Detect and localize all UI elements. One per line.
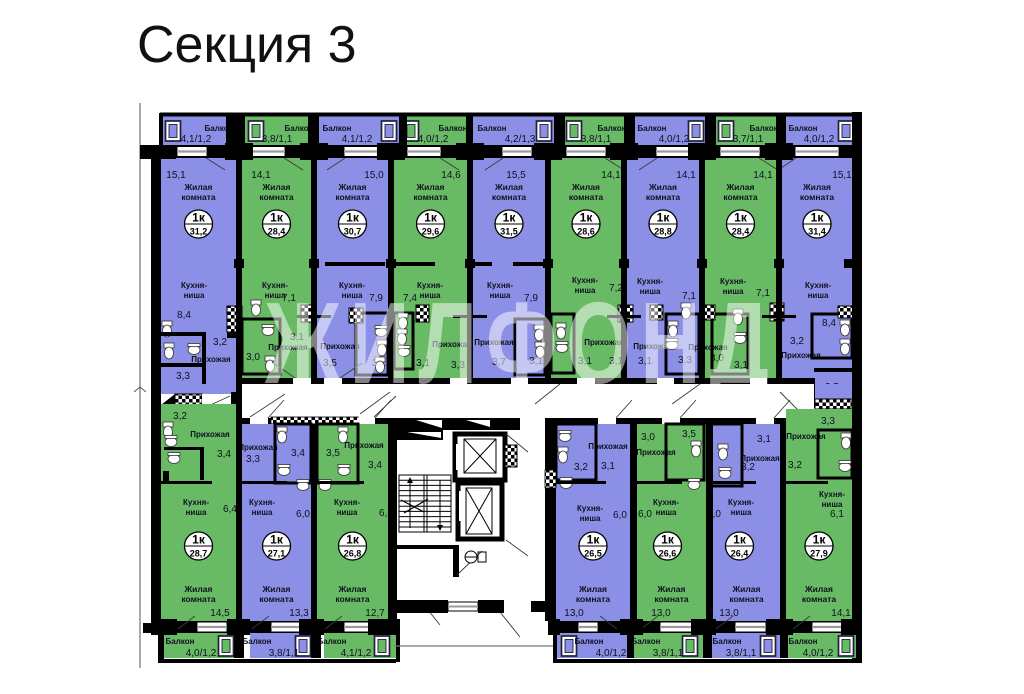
svg-text:Жилая: Жилая bbox=[802, 182, 831, 192]
svg-text:Секция 3: Секция 3 bbox=[137, 16, 357, 74]
svg-text:Балкон: Балкон bbox=[598, 124, 627, 133]
svg-text:4,1/1,2: 4,1/1,2 bbox=[341, 648, 372, 659]
svg-text:4,1/1,2: 4,1/1,2 bbox=[342, 134, 373, 145]
svg-text:Балкон: Балкон bbox=[789, 637, 818, 646]
svg-text:31,5: 31,5 bbox=[500, 227, 518, 237]
svg-text:3,2: 3,2 bbox=[213, 337, 227, 348]
svg-text:31,4: 31,4 bbox=[808, 227, 826, 237]
svg-text:3,3: 3,3 bbox=[821, 416, 835, 427]
svg-text:Жилая: Жилая bbox=[494, 182, 523, 192]
svg-text:1к: 1к bbox=[424, 211, 438, 225]
svg-text:4,0/1,2: 4,0/1,2 bbox=[596, 648, 627, 659]
svg-text:1к: 1к bbox=[811, 211, 825, 225]
svg-text:комната: комната bbox=[413, 192, 448, 202]
svg-text:Жилая: Жилая bbox=[804, 584, 833, 594]
svg-text:28,6: 28,6 bbox=[577, 227, 595, 237]
svg-text:Прихожая: Прихожая bbox=[636, 448, 676, 457]
svg-text:ниша: ниша bbox=[580, 514, 601, 523]
svg-text:3,1: 3,1 bbox=[757, 434, 771, 445]
svg-text:комната: комната bbox=[646, 192, 681, 202]
svg-text:3,7/1,1: 3,7/1,1 bbox=[733, 134, 764, 145]
svg-text:1к: 1к bbox=[657, 211, 671, 225]
svg-text:Кухня-: Кухня- bbox=[249, 498, 275, 507]
svg-text:ниша: ниша bbox=[656, 508, 677, 517]
svg-text:комната: комната bbox=[800, 192, 835, 202]
svg-text:1к: 1к bbox=[580, 211, 594, 225]
svg-text:3,5: 3,5 bbox=[326, 448, 340, 459]
svg-text:комната: комната bbox=[181, 192, 216, 202]
svg-text:1к: 1к bbox=[192, 533, 206, 547]
svg-text:Балкон: Балкон bbox=[166, 637, 195, 646]
svg-text:3,8/1,1: 3,8/1,1 bbox=[653, 648, 684, 659]
svg-text:3,2: 3,2 bbox=[790, 336, 804, 347]
svg-text:26,6: 26,6 bbox=[659, 549, 677, 559]
svg-text:1к: 1к bbox=[270, 533, 284, 547]
svg-text:3,3: 3,3 bbox=[246, 454, 260, 465]
svg-text:4,0/1,2: 4,0/1,2 bbox=[659, 134, 690, 145]
svg-text:15,5: 15,5 bbox=[506, 170, 526, 181]
svg-text:Кухня-: Кухня- bbox=[183, 498, 209, 507]
svg-text:ниша: ниша bbox=[822, 500, 843, 509]
svg-text:1к: 1к bbox=[270, 211, 284, 225]
svg-text:Жилая: Жилая bbox=[732, 584, 761, 594]
svg-text:Жилая: Жилая bbox=[571, 182, 600, 192]
svg-text:Жилая: Жилая bbox=[657, 584, 686, 594]
svg-text:14,1: 14,1 bbox=[753, 170, 773, 181]
svg-text:Жилая: Жилая bbox=[648, 182, 677, 192]
svg-text:комната: комната bbox=[802, 594, 837, 604]
svg-text:Балкон: Балкон bbox=[575, 637, 604, 646]
svg-text:6,0: 6,0 bbox=[296, 509, 310, 520]
svg-text:Балкон: Балкон bbox=[439, 124, 468, 133]
svg-text:3,8/1,1: 3,8/1,1 bbox=[581, 134, 612, 145]
svg-text:12,7: 12,7 bbox=[365, 608, 385, 619]
svg-text:28,4: 28,4 bbox=[268, 227, 286, 237]
svg-text:Балкон: Балкон bbox=[243, 637, 272, 646]
svg-text:3,4: 3,4 bbox=[217, 449, 231, 460]
svg-text:15,1: 15,1 bbox=[832, 170, 852, 181]
svg-text:ниша: ниша bbox=[808, 291, 829, 300]
svg-text:ЖИЛФОНД: ЖИЛФОНД bbox=[264, 280, 769, 409]
svg-text:28,4: 28,4 bbox=[732, 227, 750, 237]
svg-text:30,7: 30,7 bbox=[344, 227, 362, 237]
svg-text:Балкон: Балкон bbox=[323, 124, 352, 133]
svg-text:27,1: 27,1 bbox=[268, 549, 286, 559]
svg-text:ниша: ниша bbox=[184, 291, 205, 300]
svg-text:Жилая: Жилая bbox=[262, 182, 291, 192]
svg-text:31,2: 31,2 bbox=[190, 227, 208, 237]
svg-text:комната: комната bbox=[492, 192, 527, 202]
svg-text:14,6: 14,6 bbox=[441, 170, 461, 181]
svg-text:Кухня-: Кухня- bbox=[334, 498, 360, 507]
svg-text:1к: 1к bbox=[661, 533, 675, 547]
svg-text:4,0/1,2: 4,0/1,2 bbox=[803, 648, 834, 659]
svg-text:13,0: 13,0 bbox=[651, 608, 671, 619]
svg-text:1к: 1к bbox=[733, 533, 747, 547]
svg-text:13,0: 13,0 bbox=[719, 608, 739, 619]
svg-text:Жилая: Жилая bbox=[726, 182, 755, 192]
svg-text:Прихожая: Прихожая bbox=[238, 443, 278, 452]
svg-text:6,1: 6,1 bbox=[830, 509, 844, 520]
svg-text:4,1/1,2: 4,1/1,2 bbox=[181, 134, 212, 145]
svg-text:Балкон: Балкон bbox=[750, 124, 779, 133]
svg-text:комната: комната bbox=[335, 192, 370, 202]
svg-text:Кухня-: Кухня- bbox=[577, 504, 603, 513]
svg-text:13,3: 13,3 bbox=[289, 608, 309, 619]
svg-text:3,2: 3,2 bbox=[788, 460, 802, 471]
svg-text:1к: 1к bbox=[813, 533, 827, 547]
svg-text:6,0: 6,0 bbox=[638, 509, 652, 520]
svg-text:Кухня-: Кухня- bbox=[181, 281, 207, 290]
svg-text:комната: комната bbox=[576, 594, 611, 604]
svg-text:Жилая: Жилая bbox=[416, 182, 445, 192]
svg-text:14,5: 14,5 bbox=[210, 608, 230, 619]
svg-text:28,7: 28,7 bbox=[190, 549, 208, 559]
svg-text:6,4: 6,4 bbox=[223, 504, 237, 515]
svg-text:3,4: 3,4 bbox=[368, 460, 382, 471]
svg-text:3,4: 3,4 bbox=[291, 448, 305, 459]
svg-text:6,0: 6,0 bbox=[613, 510, 627, 521]
svg-text:комната: комната bbox=[729, 594, 764, 604]
svg-text:ниша: ниша bbox=[731, 508, 752, 517]
svg-text:1к: 1к bbox=[346, 211, 360, 225]
svg-text:1к: 1к bbox=[346, 533, 360, 547]
svg-text:4,0/1,2: 4,0/1,2 bbox=[186, 648, 217, 659]
svg-text:3,5: 3,5 bbox=[682, 429, 696, 440]
svg-text:26,4: 26,4 bbox=[731, 549, 749, 559]
svg-text:ниша: ниша bbox=[252, 508, 273, 517]
svg-text:3,2: 3,2 bbox=[574, 462, 588, 473]
svg-text:3,2: 3,2 bbox=[173, 411, 187, 422]
svg-text:Балкон: Балкон bbox=[789, 124, 818, 133]
svg-text:комната: комната bbox=[569, 192, 604, 202]
svg-text:Балкон: Балкон bbox=[318, 637, 347, 646]
svg-text:27,9: 27,9 bbox=[810, 549, 828, 559]
svg-text:8,4: 8,4 bbox=[822, 318, 836, 329]
svg-text:13,0: 13,0 bbox=[564, 608, 584, 619]
svg-text:Балкон: Балкон bbox=[632, 637, 661, 646]
svg-text:15,0: 15,0 bbox=[364, 170, 384, 181]
svg-text:14,1: 14,1 bbox=[251, 170, 271, 181]
svg-text:Жилая: Жилая bbox=[184, 182, 213, 192]
svg-text:комната: комната bbox=[259, 594, 294, 604]
svg-text:комната: комната bbox=[259, 192, 294, 202]
svg-text:4,0/1,2: 4,0/1,2 bbox=[418, 134, 449, 145]
svg-text:ниша: ниша bbox=[337, 508, 358, 517]
svg-text:28,8: 28,8 bbox=[654, 227, 672, 237]
svg-text:Жилая: Жилая bbox=[338, 584, 367, 594]
svg-text:Кухня-: Кухня- bbox=[653, 498, 679, 507]
svg-text:3,8/1,1: 3,8/1,1 bbox=[262, 134, 293, 145]
svg-text:Жилая: Жилая bbox=[578, 584, 607, 594]
svg-text:26,5: 26,5 bbox=[584, 549, 602, 559]
svg-text:комната: комната bbox=[723, 192, 758, 202]
svg-text:Жилая: Жилая bbox=[262, 584, 291, 594]
svg-text:1к: 1к bbox=[192, 211, 206, 225]
svg-text:Жилая: Жилая bbox=[338, 182, 367, 192]
svg-text:1к: 1к bbox=[587, 533, 601, 547]
svg-text:14,1: 14,1 bbox=[831, 608, 851, 619]
svg-text:Кухня-: Кухня- bbox=[728, 498, 754, 507]
svg-text:1к: 1к bbox=[503, 211, 517, 225]
svg-text:1к: 1к bbox=[734, 211, 748, 225]
svg-text:8,4: 8,4 bbox=[177, 310, 191, 321]
svg-text:3,0: 3,0 bbox=[641, 432, 655, 443]
svg-text:4,0/1,2: 4,0/1,2 bbox=[804, 134, 835, 145]
svg-text:комната: комната bbox=[335, 594, 370, 604]
svg-text:комната: комната bbox=[654, 594, 689, 604]
svg-text:3,3: 3,3 bbox=[176, 371, 190, 382]
svg-text:3,0: 3,0 bbox=[246, 352, 260, 363]
svg-text:Прихожая: Прихожая bbox=[190, 430, 230, 439]
svg-text:Прихожая: Прихожая bbox=[588, 442, 628, 451]
svg-text:Кухня-: Кухня- bbox=[819, 490, 845, 499]
svg-text:4,2/1,3: 4,2/1,3 bbox=[505, 134, 536, 145]
svg-text:Прихожая: Прихожая bbox=[344, 441, 384, 450]
svg-text:26,8: 26,8 bbox=[344, 549, 362, 559]
svg-text:3,8/1,1: 3,8/1,1 bbox=[726, 648, 757, 659]
svg-text:14,1: 14,1 bbox=[676, 170, 696, 181]
svg-text:3,8/1,1: 3,8/1,1 bbox=[269, 648, 300, 659]
svg-text:29,6: 29,6 bbox=[422, 227, 440, 237]
svg-text:15,1: 15,1 bbox=[166, 170, 186, 181]
svg-text:Балкон: Балкон bbox=[713, 637, 742, 646]
svg-text:Прихожая: Прихожая bbox=[786, 432, 826, 441]
svg-text:14,1: 14,1 bbox=[601, 170, 621, 181]
svg-text:3,1: 3,1 bbox=[601, 461, 615, 472]
svg-text:Балкон: Балкон bbox=[638, 124, 667, 133]
svg-text:ниша: ниша bbox=[186, 508, 207, 517]
svg-text:Балкон: Балкон bbox=[478, 124, 507, 133]
svg-text:Жилая: Жилая bbox=[184, 584, 213, 594]
svg-text:Кухня-: Кухня- bbox=[805, 281, 831, 290]
svg-text:комната: комната bbox=[181, 594, 216, 604]
svg-text:Прихожая: Прихожая bbox=[191, 355, 231, 364]
